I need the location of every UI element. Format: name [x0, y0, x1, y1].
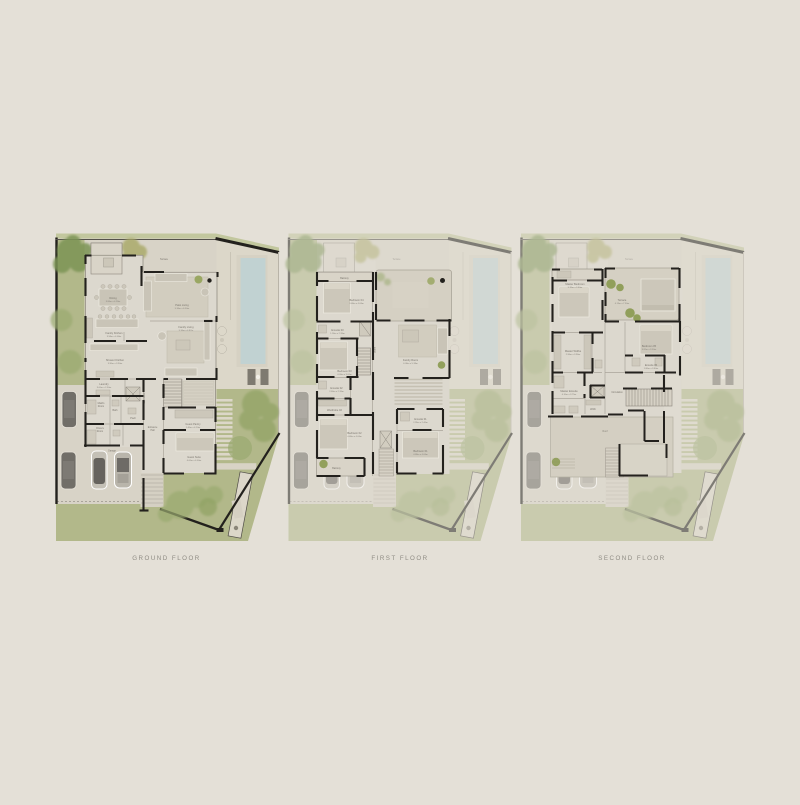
svg-text:4.00m x 4.00m: 4.00m x 4.00m — [187, 460, 202, 462]
svg-text:Garage: Garage — [108, 450, 117, 453]
svg-text:Ensuite 01: Ensuite 01 — [414, 417, 427, 421]
svg-text:2.96m x 3.96m: 2.96m x 3.96m — [566, 354, 581, 356]
svg-text:Bedroom 03: Bedroom 03 — [337, 369, 352, 373]
svg-text:Bedroom 02: Bedroom 02 — [347, 431, 362, 435]
svg-text:Dining: Dining — [109, 296, 117, 300]
svg-text:4.48m x 4.06m: 4.48m x 4.06m — [347, 436, 362, 438]
svg-text:Room: Room — [97, 430, 103, 433]
svg-text:1.40m x 4.20m: 1.40m x 4.20m — [186, 427, 201, 429]
svg-text:Laundry: Laundry — [99, 382, 109, 386]
svg-text:Ensuite 03: Ensuite 03 — [331, 328, 344, 332]
svg-text:Guest Suite: Guest Suite — [187, 455, 201, 459]
svg-text:Master Bedroom: Master Bedroom — [565, 282, 584, 286]
svg-text:Hall: Hall — [150, 429, 155, 432]
svg-text:Bedroom 01: Bedroom 01 — [413, 449, 428, 453]
svg-text:Terrace: Terrace — [618, 298, 627, 302]
svg-text:1.90m x 2.35m: 1.90m x 2.35m — [330, 333, 345, 335]
svg-text:Wardrobe 02: Wardrobe 02 — [327, 408, 342, 412]
svg-text:2.95m x 2.40m: 2.95m x 2.40m — [413, 422, 428, 424]
svg-text:Family Kitchen: Family Kitchen — [105, 331, 123, 335]
svg-text:Guest Pantry: Guest Pantry — [185, 422, 201, 426]
svg-text:Bedroom 04: Bedroom 04 — [349, 298, 364, 302]
svg-text:Master Wdrbe: Master Wdrbe — [565, 349, 582, 353]
svg-text:1.80m x 3.80m: 1.80m x 3.80m — [644, 368, 659, 370]
svg-text:SECOND FLOOR: SECOND FLOOR — [598, 555, 666, 562]
svg-text:Master Ensuite: Master Ensuite — [560, 389, 578, 393]
svg-text:4.00m x 3.00m: 4.00m x 3.00m — [337, 374, 352, 376]
svg-text:4.10m x 3.75m: 4.10m x 3.75m — [562, 394, 577, 396]
svg-text:Ensuite 02: Ensuite 02 — [330, 386, 343, 390]
svg-text:GROUND FLOOR: GROUND FLOOR — [132, 555, 201, 562]
svg-text:Patio Living: Patio Living — [175, 303, 189, 307]
svg-text:Balcony: Balcony — [332, 467, 341, 470]
svg-text:5.34m x 4.87m: 5.34m x 4.87m — [179, 330, 194, 332]
svg-text:3.81m x 3.30m: 3.81m x 3.30m — [642, 349, 657, 351]
svg-text:Circulation: Circulation — [611, 391, 623, 394]
svg-text:Bath: Bath — [113, 409, 119, 412]
svg-text:Shower Kitchen: Shower Kitchen — [106, 358, 125, 362]
svg-text:5.35m x 3.60m: 5.35m x 3.60m — [568, 287, 583, 289]
svg-text:6.08m x 5.38m: 6.08m x 5.38m — [403, 363, 418, 365]
svg-text:4.88m x 4.06m: 4.88m x 4.06m — [413, 454, 428, 456]
svg-text:Room: Room — [98, 405, 104, 408]
svg-text:FIRST FLOOR: FIRST FLOOR — [371, 555, 428, 562]
svg-text:Wdrb: Wdrb — [590, 408, 596, 411]
svg-text:Family Living: Family Living — [178, 325, 194, 329]
svg-text:Pwdr: Pwdr — [130, 417, 136, 420]
svg-text:3.00m x 2.50m: 3.00m x 2.50m — [97, 387, 112, 389]
svg-text:5.34m x 6.30m: 5.34m x 6.30m — [175, 308, 190, 310]
svg-text:3.90m x 3.90m: 3.90m x 3.90m — [108, 363, 123, 365]
svg-text:4.13m x 7.30m: 4.13m x 7.30m — [615, 303, 630, 305]
svg-text:2.60m x 2.35m: 2.60m x 2.35m — [329, 391, 344, 393]
svg-text:Balcony: Balcony — [340, 277, 349, 280]
svg-text:3.58m x 4.08m: 3.58m x 4.08m — [107, 336, 122, 338]
svg-text:3.84m x 4.28m: 3.84m x 4.28m — [106, 301, 121, 303]
svg-text:3.48m x 4.06m: 3.48m x 4.06m — [349, 303, 364, 305]
svg-text:Family Room: Family Room — [403, 358, 418, 362]
svg-text:Bedroom 05: Bedroom 05 — [642, 344, 657, 348]
svg-text:Ensuite 05: Ensuite 05 — [645, 363, 658, 367]
svg-text:Roof: Roof — [602, 430, 607, 433]
